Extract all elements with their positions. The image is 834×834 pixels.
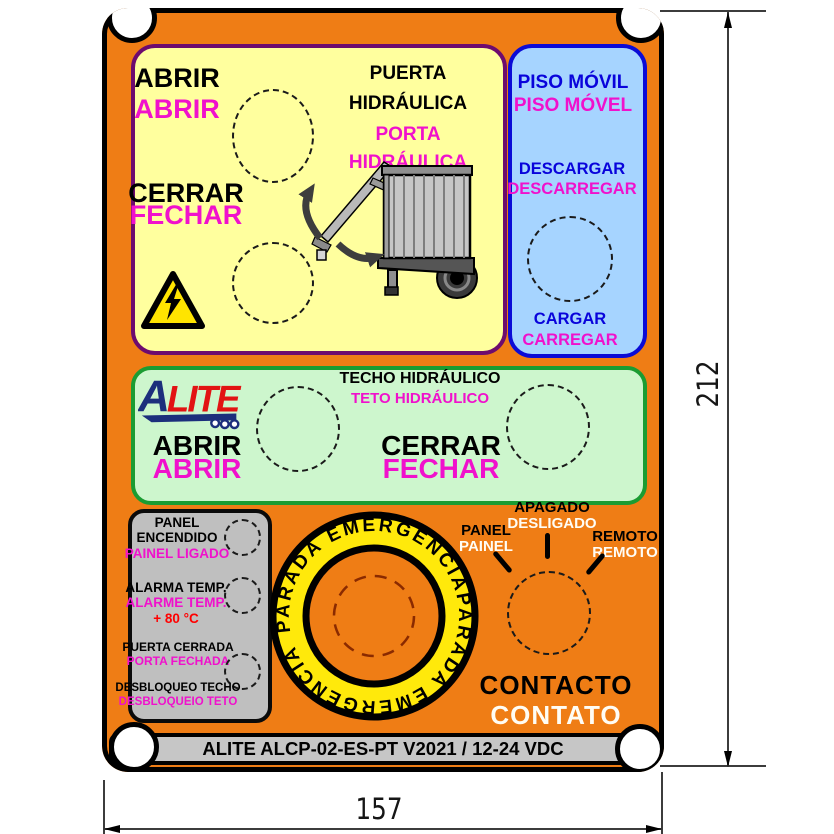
selector-remote-label-es: REMOTO [592, 529, 658, 545]
svg-text:A: A [138, 373, 170, 422]
width-arrow-right-icon [646, 825, 662, 833]
status-roof-unlock-es: DESBLOQUEO TECHO [115, 682, 240, 694]
height-extension-line-top [660, 10, 766, 12]
roof-open-button-hole [256, 386, 340, 472]
roof-close-label-pt: FECHAR [383, 454, 500, 483]
drawing-canvas: ALITE ALCP-02-ES-PT V2021 / 12-24 VDC AB… [0, 0, 834, 834]
svg-text:LITE: LITE [167, 379, 242, 420]
status-temp-threshold: + 80 °C [153, 612, 199, 626]
floor-load-label-es: CARGAR [534, 311, 606, 328]
mounting-notch-bottom-left [109, 722, 159, 772]
trailer-illustration [298, 158, 478, 303]
floor-title-es: PISO MÓVIL [518, 73, 629, 93]
height-extension-line-bottom [660, 765, 766, 767]
door-title-pt-line1: PORTA [375, 125, 440, 145]
floor-title-pt: PISO MÓVEL [514, 96, 632, 116]
floor-unload-label-pt: DESCARREGAR [507, 181, 636, 198]
selector-off-label-es: APAGADO [514, 500, 590, 516]
status-light-hole-2 [224, 577, 261, 614]
roof-open-label-pt: ABRIR [153, 454, 242, 483]
rotate-open-arrow-icon [306, 191, 320, 238]
status-temp-alarm-pt: ALARME TEMP. [125, 596, 226, 610]
roof-title-pt: TETO HIDRÁULICO [351, 391, 489, 407]
electric-hazard-icon [140, 270, 206, 332]
roof-title-es: TECHO HIDRÁULICO [340, 371, 501, 388]
selector-tick-off [545, 533, 550, 559]
mounting-notch-bottom-right [615, 724, 664, 772]
floor-load-label-pt: CARREGAR [522, 332, 617, 349]
contact-label-pt: CONTATO [490, 702, 621, 729]
model-plate: ALITE ALCP-02-ES-PT V2021 / 12-24 VDC [109, 733, 657, 765]
floor-button-hole [527, 216, 613, 302]
height-arrow-up-icon [724, 12, 732, 28]
rotate-close-arrow-icon [338, 244, 376, 258]
status-door-closed-es: PUERTA CERRADA [122, 641, 233, 654]
door-close-label-pt: FECHAR [130, 201, 243, 229]
status-panel-on-es-line2: ENCENDIDO [136, 531, 217, 545]
floor-unload-label-es: DESCARGAR [519, 161, 625, 178]
status-panel-on-pt: PAINEL LIGADO [125, 547, 230, 561]
status-door-closed-pt: PORTA FECHADA [127, 655, 230, 668]
roof-close-button-hole [506, 384, 590, 470]
door-title-es-line2: HIDRÁULICA [349, 94, 467, 114]
height-dimension-line [727, 12, 729, 767]
status-panel-on-es-line1: PANEL [155, 516, 200, 530]
width-dimension-line [104, 828, 662, 830]
door-open-label-pt: ABRIR [134, 95, 220, 123]
emergency-stop-ring: PARADA EMERGENCIA PARADA EMERGÊNCIA [263, 505, 485, 727]
width-dimension-value: 157 [355, 792, 402, 826]
status-light-hole-1 [224, 519, 261, 556]
selector-panel-label-es: PANEL [461, 523, 511, 539]
contact-label-es: CONTACTO [480, 672, 633, 699]
height-dimension-value: 212 [691, 354, 721, 414]
status-roof-unlock-pt: DESBLOQUEIO TETO [119, 696, 238, 708]
width-arrow-left-icon [104, 825, 120, 833]
selector-panel-label-pt: PAINEL [459, 539, 513, 555]
selector-knob-hole [507, 571, 591, 655]
door-title-es-line1: PUERTA [370, 64, 447, 84]
alite-logo: A LITE [138, 372, 246, 430]
status-temp-alarm-es: ALARMA TEMP. [125, 581, 226, 595]
door-open-label-es: ABRIR [134, 64, 220, 92]
selector-off-label-pt: DESLIGADO [507, 516, 596, 532]
height-arrow-down-icon [724, 751, 732, 767]
